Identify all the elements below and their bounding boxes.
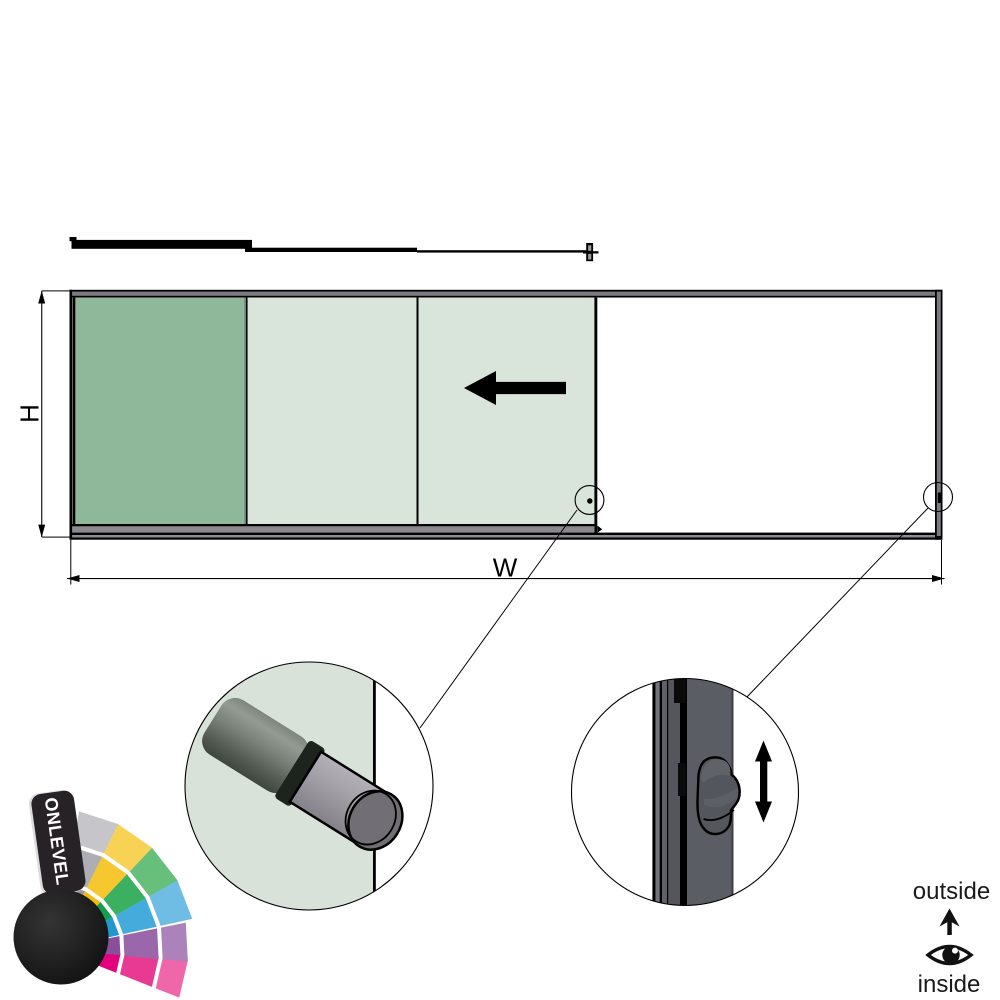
svg-text:W: W [493, 553, 518, 583]
svg-text:outside: outside [913, 878, 990, 905]
svg-text:H: H [15, 404, 45, 423]
svg-text:inside: inside [918, 971, 981, 998]
